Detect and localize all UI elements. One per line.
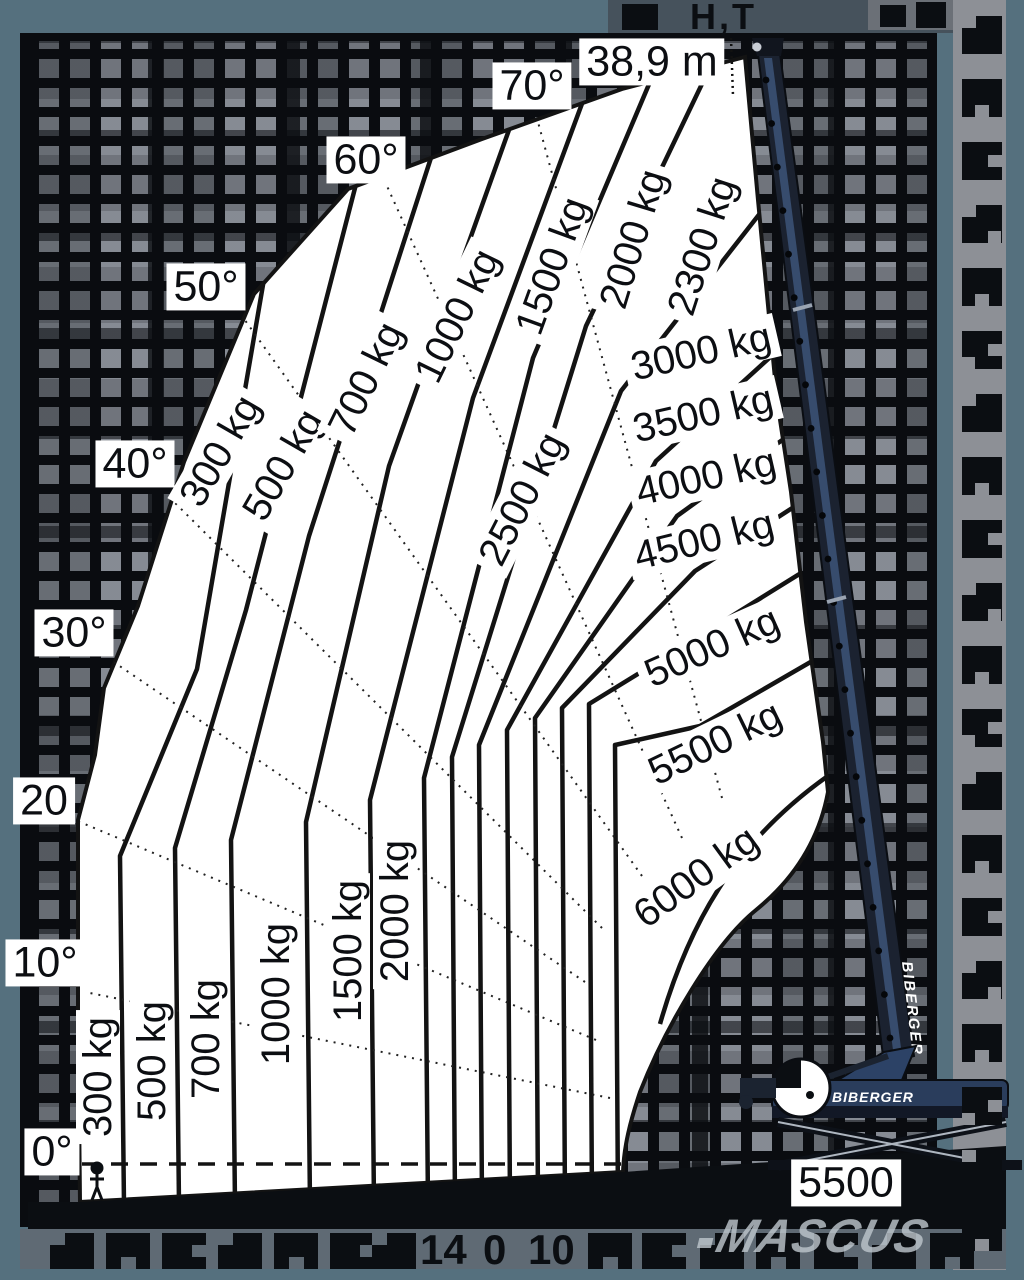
load-label-lower-1000: 1000 kg [254,916,298,1072]
svg-text:10: 10 [528,1226,575,1273]
angle-label-70: 70° [492,62,571,109]
angle-label-50: 50° [166,263,245,310]
load-label-lower-2000: 2000 kg [373,833,417,989]
base-width-label: 5500 [791,1159,901,1206]
front-attachment [740,1078,776,1098]
angle-label-40: 40° [95,440,174,487]
load-label-lower-700: 700 kg [184,972,228,1106]
svg-text:0: 0 [483,1226,506,1273]
brand-body-text: BIBERGER [832,1089,914,1105]
angle-label-10: 10° [5,939,84,986]
angle-label-30: 30° [34,609,113,656]
mascus-watermark: MASCUS [693,1208,934,1263]
angle-label-0: 0° [24,1128,79,1175]
load-label-lower-300: 300 kg [76,1010,120,1144]
load-label-lower-500: 500 kg [130,994,174,1128]
axis-remnant-numbers: 14 0 10 [420,1226,575,1273]
crane-load-chart-screenshot: H,T [0,0,1024,1280]
corrupt-header-text: H,T [690,0,757,38]
right-strip-glyphs [962,16,1002,1251]
max-height-label: 38,9 m [579,38,724,85]
load-label-lower-1500: 1500 kg [326,873,370,1029]
mascus-logo [697,1238,713,1248]
angle-label-20: 20 [13,777,75,824]
svg-text:14: 14 [420,1226,467,1273]
angle-label-60: 60° [326,136,405,183]
